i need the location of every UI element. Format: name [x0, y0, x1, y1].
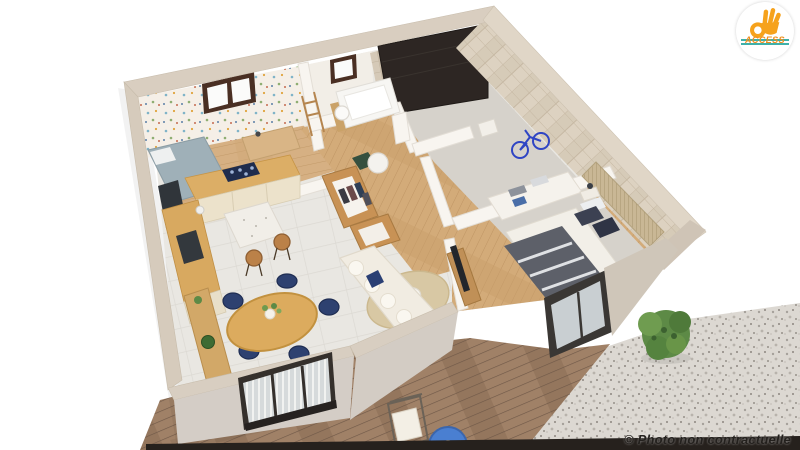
- access-logo: ACCESS: [736, 2, 794, 60]
- watermark-text: © Photo non contractuelle: [624, 432, 791, 447]
- floorplan-screenshot: ACCESS © Photo non contractuelle: [0, 0, 800, 450]
- logo-text: ACCESS: [745, 35, 785, 45]
- floorplan-3d-render: [0, 0, 800, 450]
- coffee-machine: [196, 206, 204, 214]
- decor-plate: [202, 336, 215, 349]
- access-logo-text-wrap: ACCESS: [736, 35, 794, 45]
- bedside-lamp: [587, 183, 593, 189]
- desk-lamp: [255, 131, 260, 136]
- bush: [638, 310, 691, 364]
- washbasin: [335, 106, 349, 120]
- sideboard-plant: [194, 296, 202, 304]
- laundry-basket: [368, 153, 388, 173]
